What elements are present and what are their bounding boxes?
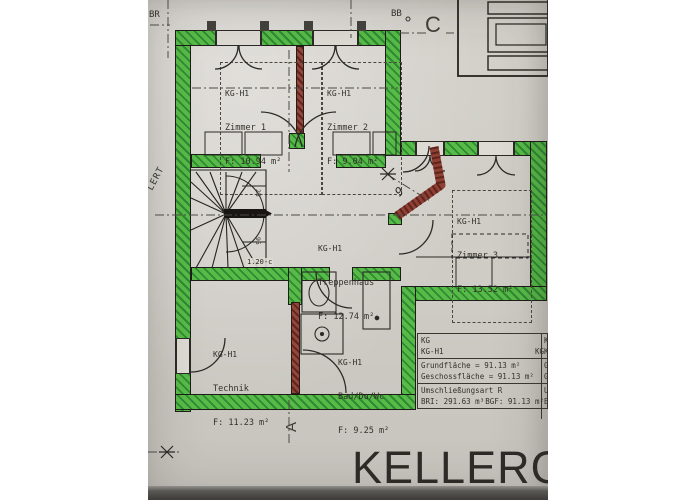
room-code: KG-H1: [338, 357, 389, 369]
room-code: KG-H1: [225, 88, 317, 100]
room-label-zimmer1: KG-H1 Zimmer 1 F: 10.94 m²: [220, 62, 322, 195]
floorplan-drawing: KG-H1 Zimmer 1 F: 10.94 m² KG-H1 Zimmer …: [148, 0, 548, 500]
room-area: F: 11.23 m²: [213, 418, 269, 430]
table-cell: Geschossfläche = 91.13 m²: [421, 371, 534, 382]
room-label-zimmer2: KG-H1 Zimmer 2 F: 9.04 m²: [322, 62, 402, 195]
room-name: Treppenhaus: [318, 278, 374, 290]
table-group-volume: Umschließungsart R BRI: 291.63 m³BGF: 91…: [418, 384, 547, 408]
section-marker-bb: BB: [391, 9, 402, 19]
room-label-zimmer3: KG-H1 Zimmer 3 F: 13.52 m²: [452, 190, 532, 323]
room-code: KG-H1: [327, 88, 397, 100]
room-area: F: 13.52 m²: [457, 285, 527, 297]
photo-bottom-edge: [148, 486, 548, 500]
jamb-stub: [304, 21, 313, 31]
wall-bath-right: [401, 286, 416, 410]
room-data-table-clipped-column: KG KG-H1 Grundfläche = 91.13 m² Geschoss…: [541, 333, 548, 419]
table-cell: Grundfläche = 91.13 m²: [421, 360, 520, 371]
window-zimmer2: [312, 30, 359, 46]
wall-post-diagonal: [388, 213, 402, 225]
room-area: F: 9.25 m²: [338, 426, 389, 438]
marker-circle: [406, 17, 410, 21]
table-cell: KG-H1: [544, 346, 548, 357]
exterior-structure: [458, 0, 548, 76]
door-opening-technik: [175, 338, 191, 374]
room-area: F: 9.04 m²: [327, 157, 397, 169]
section-letter-a: A: [283, 422, 300, 432]
room-name: Technik: [213, 384, 269, 396]
table-cell: Umschließungsart R: [544, 385, 548, 396]
red-diagonal-wall: [397, 147, 441, 216]
table-cell: Umschließungsart R: [421, 385, 502, 396]
room-code: KG-H1: [457, 216, 527, 228]
room-name: Zimmer 1: [225, 123, 317, 135]
section-marker-br: BR: [149, 10, 160, 20]
window-rightwing-2: [477, 141, 515, 156]
wall-right: [530, 141, 547, 301]
table-cell: Grundfläche = 91.13 m²: [544, 360, 548, 371]
room-name: Zimmer 3: [457, 251, 527, 263]
floorplan-screenshot: KG-H1 Zimmer 1 F: 10.94 m² KG-H1 Zimmer …: [0, 0, 700, 500]
wall-post-divider: [288, 267, 302, 305]
table-group-ident: KG KG-H1KG: [418, 334, 547, 359]
table-cell: BGF: 91.13 m²: [485, 396, 544, 407]
table-cell: BRI: 291.63 m³: [421, 396, 484, 407]
stair-dim-mid: 95: [254, 237, 262, 245]
room-label-technik: KG-H1 Technik F: 11.23 m²: [213, 326, 269, 453]
jamb-stub: [357, 21, 366, 31]
window-rightwing-1: [415, 141, 445, 156]
table-cell: KG-H1: [421, 346, 444, 357]
rotated-edge-text: LERT: [148, 165, 167, 192]
section-letter-c: C: [425, 12, 441, 37]
room-code: KG-H1: [213, 349, 269, 361]
drain-dot: [375, 316, 379, 320]
jamb-stub: [260, 21, 269, 31]
room-label-treppenhaus: KG-H1 Treppenhaus F: 12.74 m²: [318, 220, 374, 347]
table-cell: KG: [544, 335, 548, 346]
room-name: Zimmer 2: [327, 123, 397, 135]
window-zimmer1: [215, 30, 262, 46]
table-cell: Geschossfläche = 91.13 m²: [544, 371, 548, 382]
room-code: KG-H1: [318, 243, 374, 255]
table-group-areas: Grundfläche = 91.13 m² Geschossfläche = …: [418, 359, 547, 384]
scanned-plan-photo: KG-H1 Zimmer 1 F: 10.94 m² KG-H1 Zimmer …: [148, 0, 548, 500]
room-area: F: 12.74 m²: [318, 312, 374, 324]
wall-top-left-wing: [175, 30, 401, 46]
room-data-table: KG KG-H1KG Grundfläche = 91.13 m² Gescho…: [417, 333, 548, 409]
room-name: Bad/Du/Wc: [338, 392, 389, 404]
stair-wall-dimension: 1.20-c: [246, 258, 273, 267]
table-cell: KG: [421, 335, 430, 346]
table-cell: BRI: 291.63 m³: [544, 396, 548, 407]
jamb-stub: [207, 21, 216, 31]
room-area: F: 10.94 m²: [225, 157, 317, 169]
red-wall-technik-bad: [291, 302, 300, 394]
wall-stair-bottom: [191, 267, 289, 281]
